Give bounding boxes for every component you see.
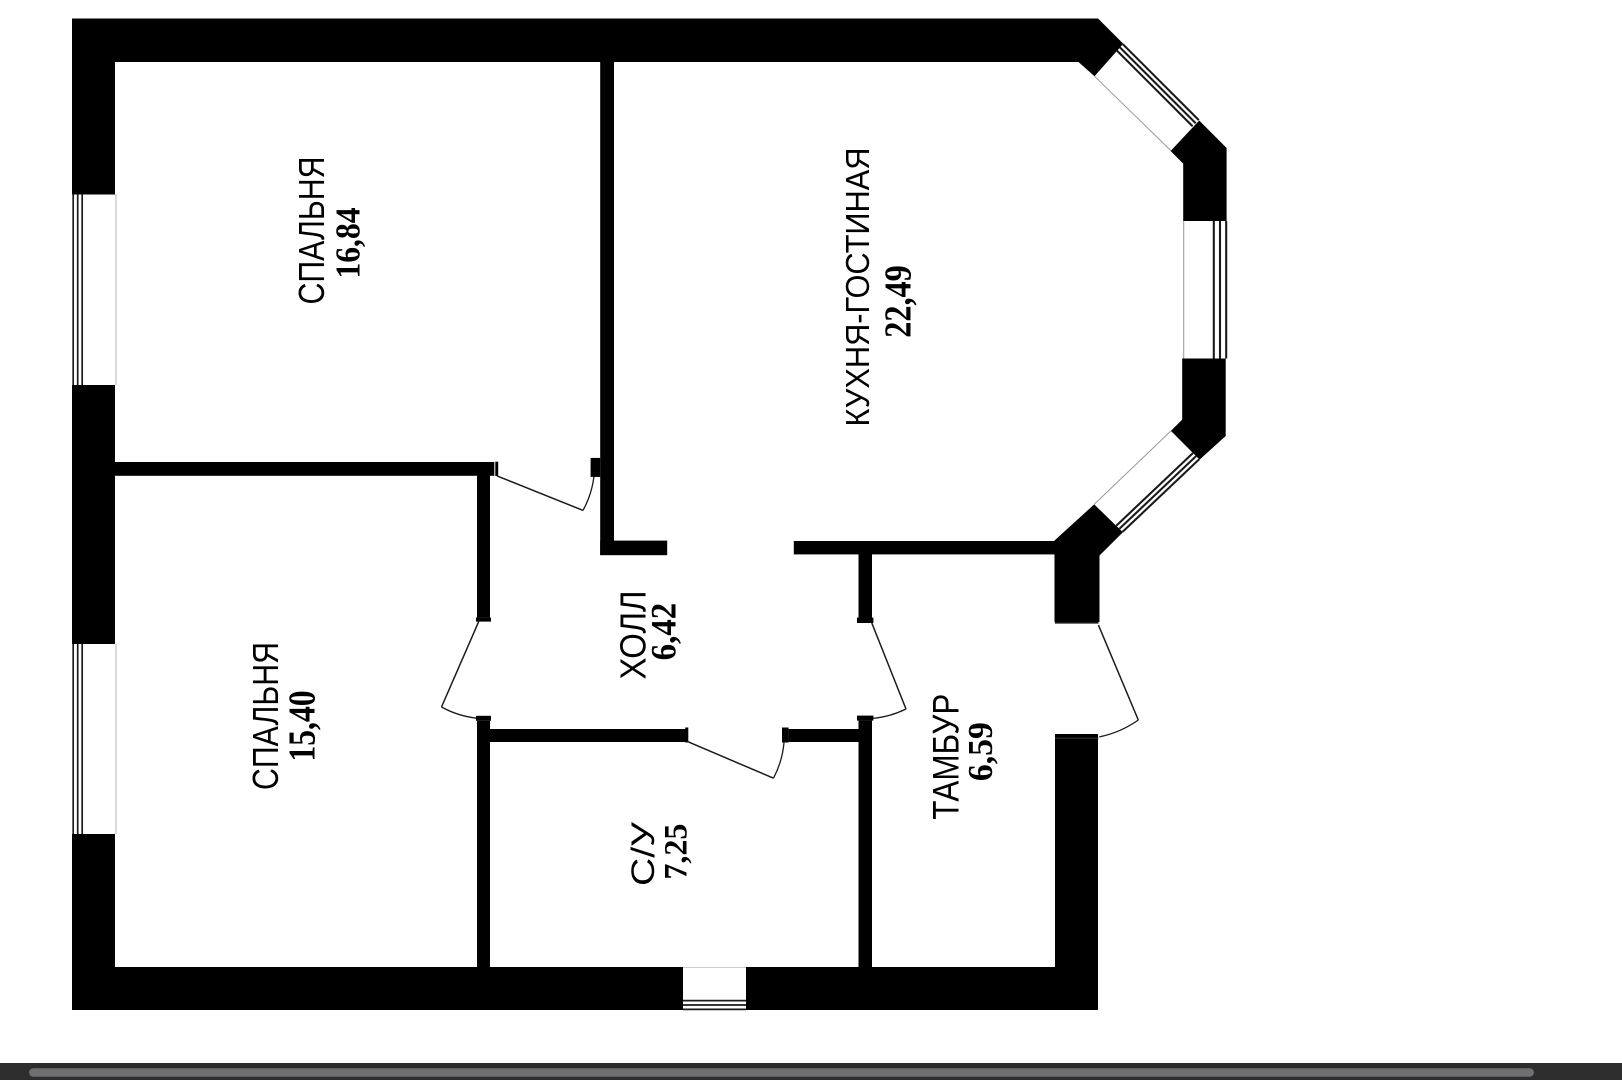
svg-text:6,59: 6,59 (961, 722, 1000, 781)
svg-text:6,42: 6,42 (644, 603, 684, 661)
svg-text:С/У: С/У (625, 821, 661, 886)
svg-text:16,84: 16,84 (329, 208, 368, 279)
svg-text:7,25: 7,25 (658, 824, 694, 880)
svg-text:СПАЛЬНЯ: СПАЛЬНЯ (291, 157, 332, 305)
svg-text:15,40: 15,40 (282, 691, 324, 762)
svg-text:КУХНЯ-ГОСТИНАЯ: КУХНЯ-ГОСТИНАЯ (839, 148, 876, 427)
svg-text:СПАЛЬНЯ: СПАЛЬНЯ (245, 642, 286, 790)
svg-text:22,49: 22,49 (878, 265, 920, 338)
